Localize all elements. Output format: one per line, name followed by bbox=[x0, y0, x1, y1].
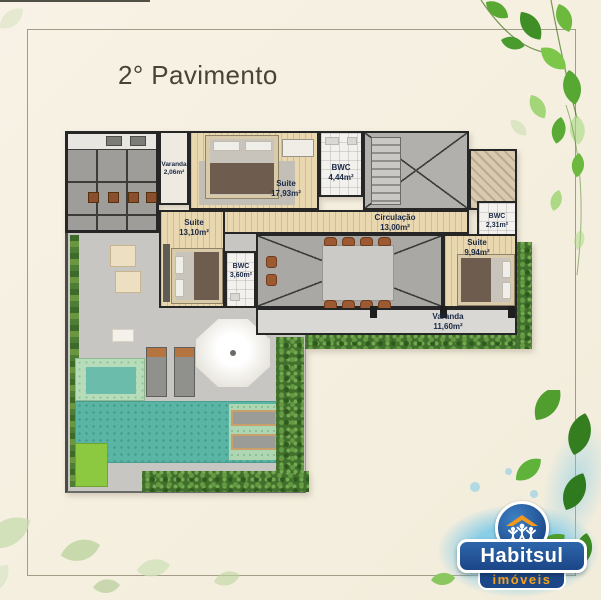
spa-water bbox=[86, 367, 136, 394]
wardrobe bbox=[163, 244, 170, 302]
pillar bbox=[370, 306, 377, 318]
chair-icon bbox=[360, 237, 373, 246]
room-area: 3,60m² bbox=[223, 272, 259, 281]
pillar bbox=[508, 306, 515, 318]
room-label: Circulação bbox=[335, 213, 455, 223]
sink-icon bbox=[230, 293, 240, 301]
leaf-decoration-pale bbox=[0, 0, 50, 60]
chair-icon bbox=[146, 192, 157, 203]
room-area: 2,06m² bbox=[159, 169, 189, 177]
room-suite-left: Suite 13,10m² bbox=[159, 210, 225, 308]
room-bwc-master: BWC 4,44m² bbox=[319, 131, 363, 197]
blanket bbox=[461, 258, 491, 302]
pillow bbox=[245, 141, 272, 151]
in-pool-lounger bbox=[231, 410, 277, 426]
chair-icon bbox=[378, 237, 391, 246]
chair-icon bbox=[88, 192, 99, 203]
sink-icon bbox=[325, 137, 339, 145]
room-label: Suite bbox=[447, 238, 507, 248]
page-title: 2° Pavimento bbox=[118, 60, 278, 91]
dining-table bbox=[322, 245, 394, 301]
deck-chair bbox=[110, 245, 136, 267]
living-void bbox=[256, 234, 443, 308]
chair-icon bbox=[128, 192, 139, 203]
room-varanda-large: Varanda 11,60m² bbox=[256, 308, 517, 335]
spa-pool bbox=[75, 358, 145, 401]
blanket bbox=[194, 252, 219, 300]
in-pool-lounger bbox=[231, 434, 277, 450]
room-label: Suite bbox=[163, 218, 225, 228]
pillow bbox=[213, 141, 240, 151]
closet bbox=[282, 139, 314, 157]
room-varanda-small: Varanda 2,06m² bbox=[159, 131, 189, 205]
appliance-icon bbox=[130, 136, 146, 146]
room-area: 13,00m² bbox=[335, 223, 455, 233]
pillow bbox=[175, 256, 184, 274]
armchair-icon bbox=[266, 256, 277, 268]
room-area: 9,94m² bbox=[447, 248, 507, 258]
sun-lounger bbox=[174, 347, 195, 397]
armchair-icon bbox=[266, 274, 277, 286]
hedge bbox=[517, 242, 532, 349]
leaf-vine bbox=[531, 105, 601, 295]
room-area: 2,31m² bbox=[477, 222, 517, 231]
room-bwc-left: BWC 3,60m² bbox=[225, 251, 256, 308]
pillow bbox=[502, 282, 511, 299]
bed bbox=[171, 248, 223, 304]
room-suite-master: Suite 17,93m² bbox=[189, 131, 319, 210]
room-area: 4,44m² bbox=[321, 173, 361, 183]
toilet-icon bbox=[347, 137, 357, 145]
room-label: BWC bbox=[321, 163, 361, 173]
pergola-grid bbox=[65, 131, 159, 233]
sun-lounger bbox=[146, 347, 167, 397]
logo-tagline: imóveis bbox=[478, 571, 566, 590]
towel-mat bbox=[112, 329, 134, 342]
pillow bbox=[502, 261, 511, 278]
chair-icon bbox=[342, 237, 355, 246]
habitsul-logo: Habitsul imóveis bbox=[452, 501, 592, 590]
room-label: BWC bbox=[477, 213, 517, 222]
hedge bbox=[305, 335, 517, 349]
deck-chair bbox=[115, 271, 141, 293]
bed bbox=[457, 254, 515, 306]
leaf-decoration-pale bbox=[0, 450, 310, 600]
pillow bbox=[175, 279, 184, 297]
room-label: Varanda bbox=[159, 161, 189, 169]
room-area: 13,10m² bbox=[163, 228, 225, 238]
room-suite-right: Suite 9,94m² bbox=[443, 234, 517, 308]
room-label: BWC bbox=[223, 263, 259, 272]
logo-wordmark: Habitsul bbox=[457, 539, 587, 573]
appliance-icon bbox=[106, 136, 122, 146]
pergola-counter bbox=[68, 134, 156, 149]
umbrella-pole bbox=[230, 350, 236, 356]
room-area: 11,60m² bbox=[388, 322, 508, 332]
room-label: Varanda bbox=[388, 312, 508, 322]
chair-icon bbox=[108, 192, 119, 203]
chair-icon bbox=[324, 237, 337, 246]
room-area: 17,93m² bbox=[255, 189, 317, 199]
room-label: Suite bbox=[255, 179, 317, 189]
marketing-page: 2° Pavimento bbox=[0, 0, 601, 600]
